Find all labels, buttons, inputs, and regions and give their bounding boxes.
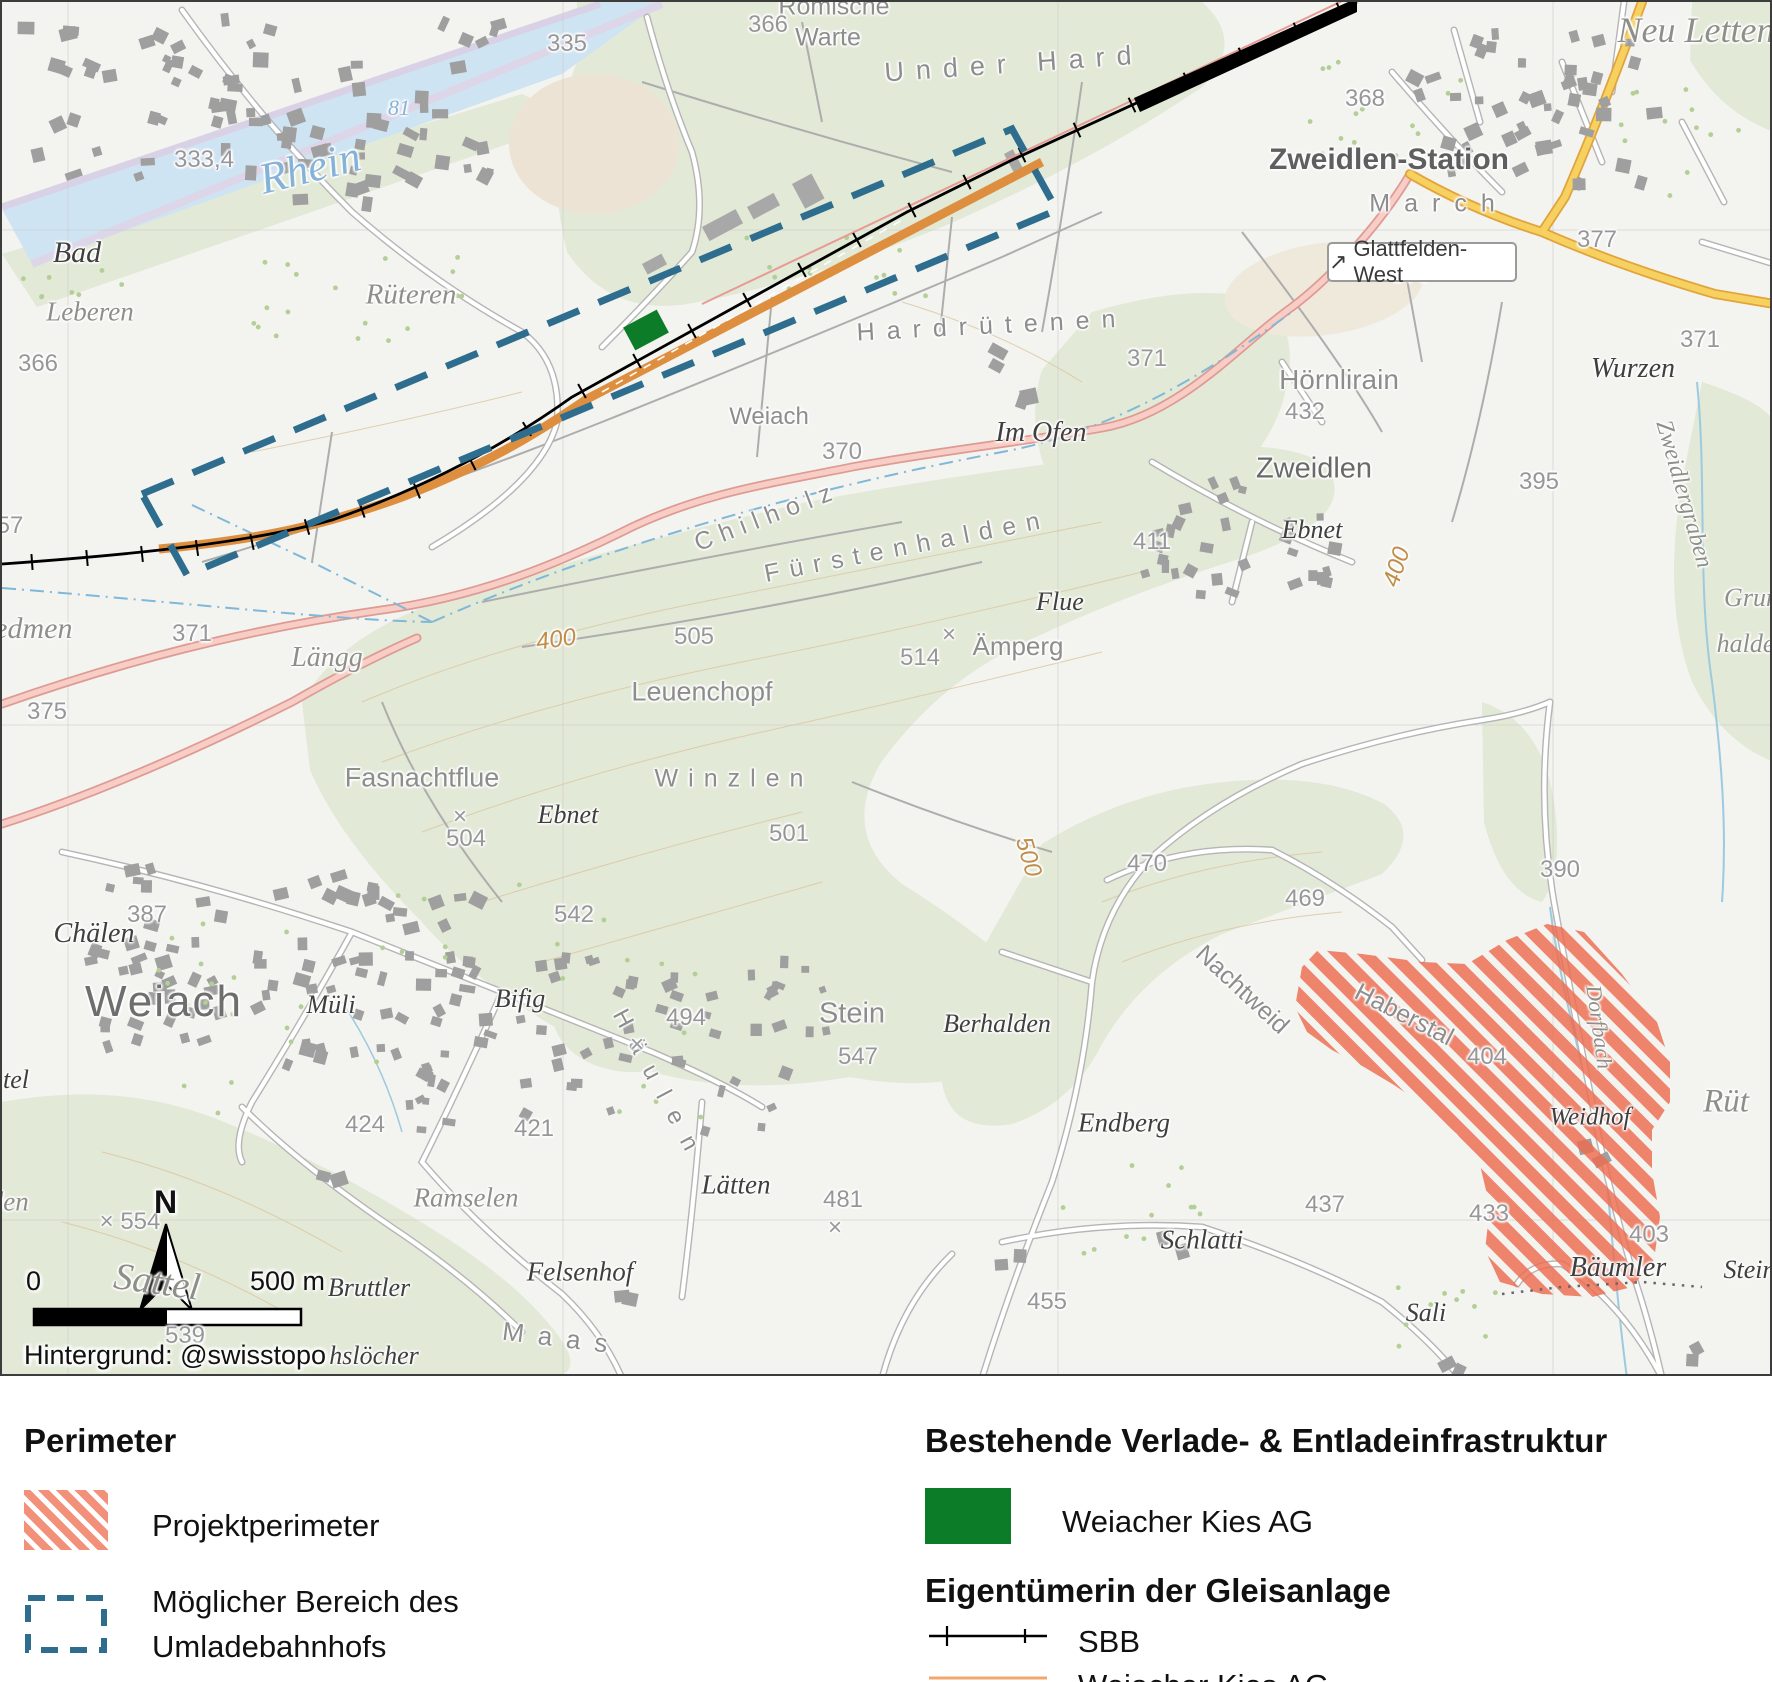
legend-item-weiacher-kies-track: Weiacher Kies AG [1078, 1664, 1329, 1682]
weiacher-kies-track-symbol [925, 1670, 1055, 1682]
scale-zero-label: 0 [26, 1266, 41, 1297]
legend-heading-perimeter: Perimeter [24, 1422, 176, 1460]
legend-item-umladebahnhof-line2: Umladebahnhofs [152, 1625, 459, 1670]
figure: RömischeWarte366Under HardNeu Letten368Z… [0, 0, 1772, 1682]
weiacher-kies-area-swatch [925, 1488, 1011, 1544]
legend-item-sbb: SBB [1078, 1620, 1140, 1665]
arrow-up-right-icon: ↗ [1329, 249, 1347, 275]
north-label: N [154, 1184, 177, 1221]
scale-distance-label: 500 m [250, 1266, 325, 1297]
project-perimeter-swatch [24, 1490, 108, 1550]
map-canvas: RömischeWarte366Under HardNeu Letten368Z… [0, 0, 1772, 1376]
legend-item-umladebahnhof-line1: Möglicher Bereich des [152, 1580, 459, 1625]
legend-item-umladebahnhof: Möglicher Bereich des Umladebahnhofs [152, 1580, 459, 1670]
legend-heading-gleisanlage: Eigentümerin der Gleisanlage [925, 1572, 1391, 1610]
legend-heading-infrastruktur: Bestehende Verlade- & Entladeinfrastrukt… [925, 1422, 1607, 1460]
legend-item-weiacher-kies-area: Weiacher Kies AG [1062, 1500, 1313, 1545]
attribution: Hintergrund: @swisstopo [24, 1340, 326, 1371]
umladebahnhof-swatch [24, 1594, 108, 1654]
road-sign-glattfelden-west: ↗ Glattfelden-West [1327, 242, 1517, 282]
road-sign-text: Glattfelden-West [1353, 236, 1515, 288]
legend: Perimeter Projektperimeter Möglicher Ber… [0, 1376, 1772, 1682]
map-graphics [2, 2, 1772, 1376]
sbb-track-symbol [925, 1622, 1055, 1650]
legend-item-projektperimeter: Projektperimeter [152, 1504, 379, 1549]
